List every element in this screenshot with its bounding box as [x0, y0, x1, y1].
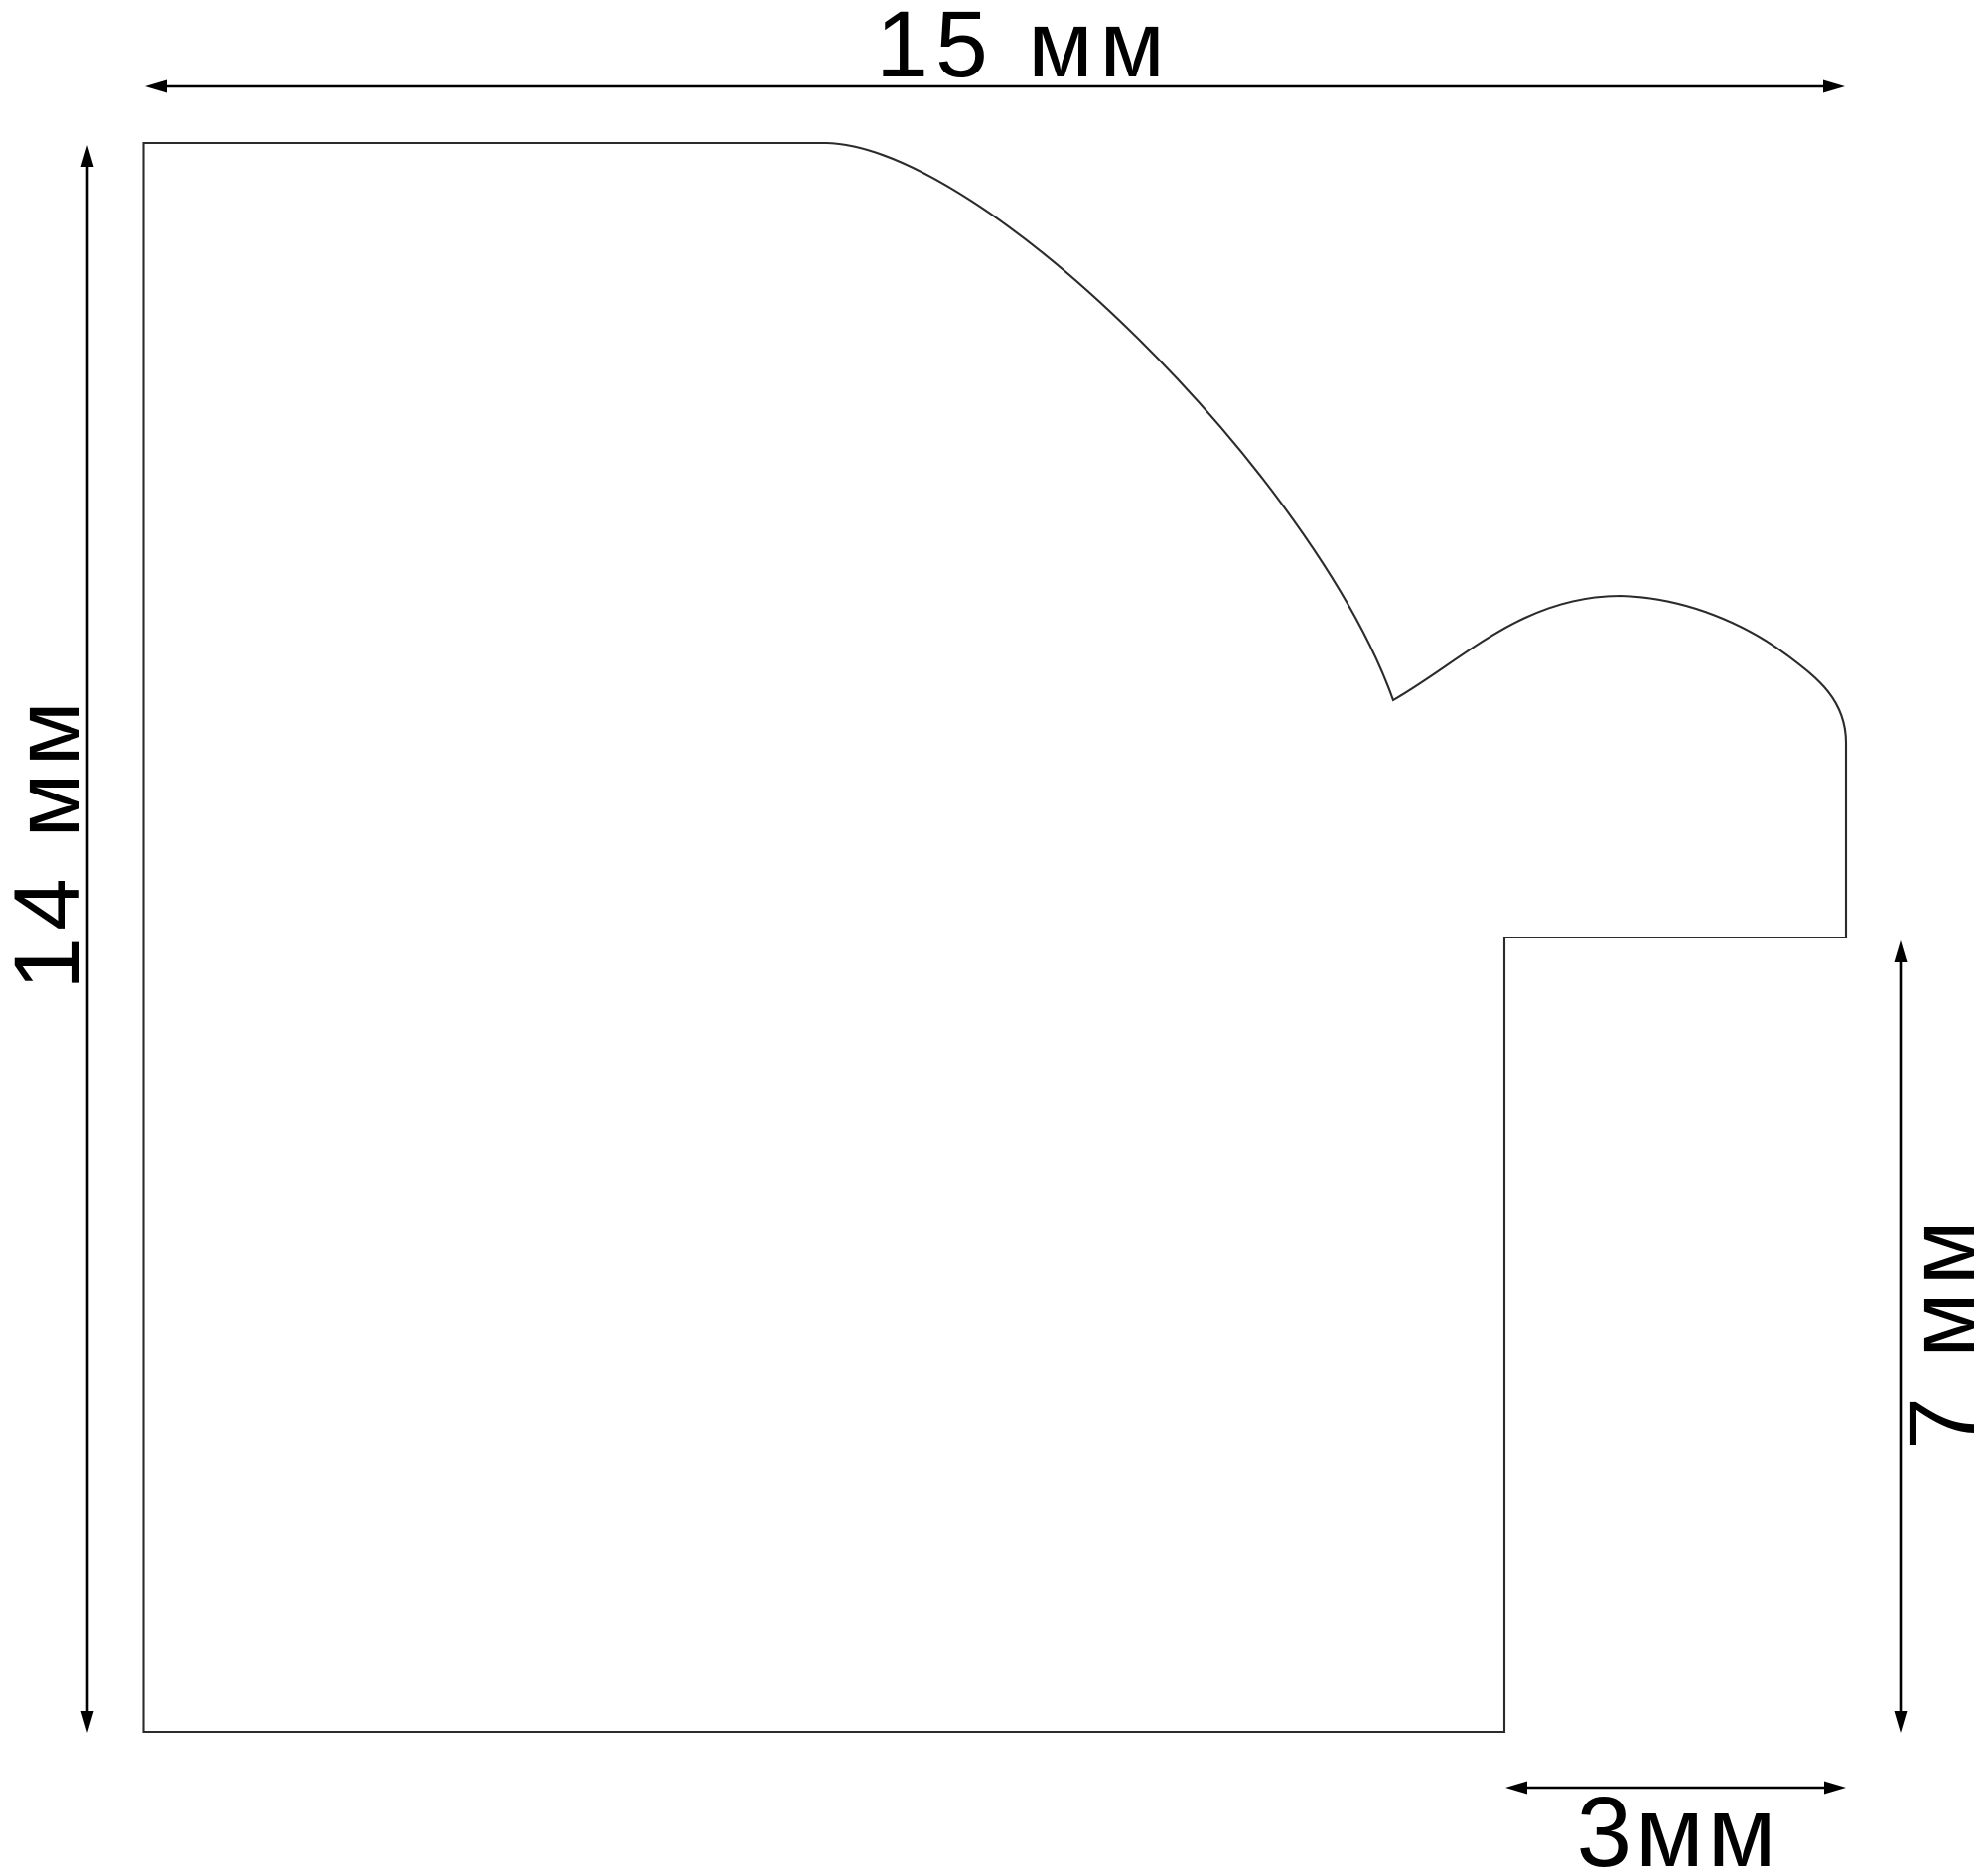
- svg-text:15 мм: 15 мм: [876, 0, 1172, 97]
- svg-text:14 мм: 14 мм: [0, 694, 100, 990]
- svg-text:7 мм: 7 мм: [1890, 1214, 1986, 1450]
- svg-text:3мм: 3мм: [1576, 1777, 1779, 1876]
